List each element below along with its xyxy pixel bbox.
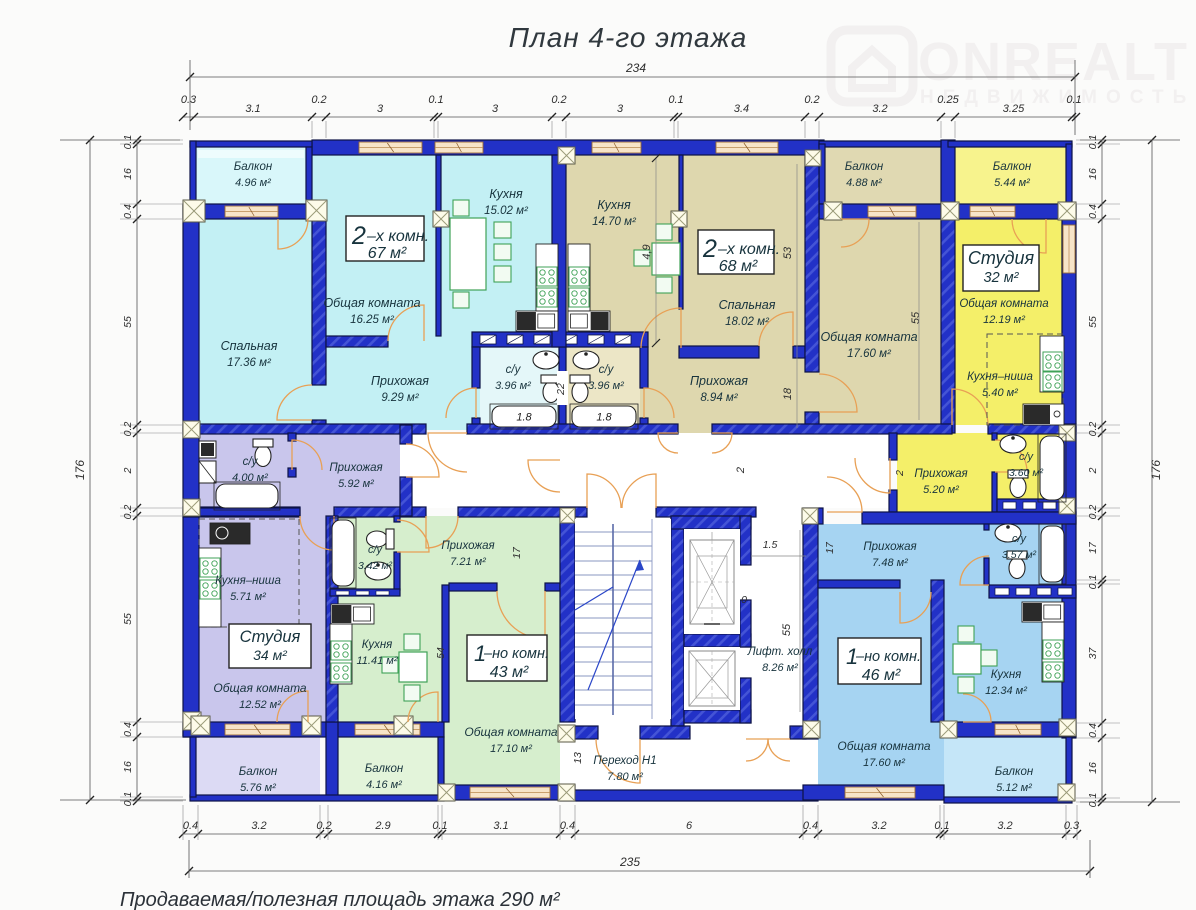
svg-text:13: 13	[572, 752, 584, 764]
svg-text:16: 16	[122, 761, 134, 773]
svg-text:с/у: с/у	[1019, 451, 1035, 463]
svg-text:3.96 м²: 3.96 м²	[495, 380, 531, 392]
svg-text:0.1: 0.1	[668, 94, 683, 106]
svg-text:0.1: 0.1	[934, 820, 949, 832]
svg-text:Общая комната: Общая комната	[837, 739, 931, 753]
svg-text:Прихожая: Прихожая	[690, 374, 748, 388]
svg-text:3.2: 3.2	[872, 103, 887, 115]
svg-text:16: 16	[1087, 762, 1099, 774]
svg-text:4,9: 4,9	[641, 244, 653, 259]
svg-text:Кухня: Кухня	[489, 187, 523, 201]
svg-text:12.34 м²: 12.34 м²	[985, 685, 1027, 697]
svg-text:17: 17	[511, 546, 523, 559]
svg-text:–но комн.: –но комн.	[483, 646, 549, 662]
svg-text:0.1: 0.1	[428, 94, 443, 106]
svg-text:Прихожая: Прихожая	[329, 462, 382, 474]
svg-text:0: 0	[741, 594, 747, 606]
svg-text:Прихожая: Прихожая	[441, 540, 494, 552]
svg-text:Балкон: Балкон	[239, 766, 278, 778]
svg-text:Балкон: Балкон	[234, 161, 273, 173]
svg-text:Кухня: Кухня	[991, 669, 1022, 681]
svg-text:Прихожая: Прихожая	[863, 541, 916, 553]
svg-text:0.1: 0.1	[1087, 793, 1099, 808]
svg-text:Продаваемая/полезная площадь э: Продаваемая/полезная площадь этажа 290 м…	[120, 889, 561, 910]
svg-text:Общая комната: Общая комната	[213, 681, 307, 695]
svg-text:0.2: 0.2	[122, 505, 134, 520]
svg-text:0.1: 0.1	[1066, 94, 1081, 106]
svg-text:55: 55	[122, 316, 134, 328]
svg-text:7.48 м²: 7.48 м²	[872, 557, 908, 569]
svg-text:–х комн.: –х комн.	[366, 228, 429, 245]
svg-text:3: 3	[492, 103, 499, 115]
svg-text:2: 2	[735, 467, 747, 474]
svg-text:17.36 м²: 17.36 м²	[227, 357, 272, 369]
svg-text:Спальная: Спальная	[719, 298, 776, 312]
svg-text:0.1: 0.1	[1087, 575, 1099, 590]
svg-text:7.80 м²: 7.80 м²	[607, 771, 643, 783]
svg-text:55: 55	[910, 311, 922, 324]
svg-text:Кухня: Кухня	[597, 198, 631, 212]
svg-text:1.8: 1.8	[516, 412, 532, 424]
svg-text:0.2: 0.2	[804, 94, 819, 106]
svg-text:Балкон: Балкон	[845, 161, 884, 173]
svg-text:9.29 м²: 9.29 м²	[381, 392, 419, 404]
svg-text:3.2: 3.2	[251, 820, 266, 832]
svg-text:3.1: 3.1	[245, 103, 260, 115]
svg-text:3.42 м²: 3.42 м²	[358, 560, 393, 572]
svg-text:Спальная: Спальная	[221, 339, 278, 353]
svg-text:176: 176	[1149, 460, 1163, 480]
svg-text:7.21 м²: 7.21 м²	[450, 556, 486, 568]
svg-text:0.1: 0.1	[432, 820, 447, 832]
svg-text:Общая комната: Общая комната	[820, 330, 917, 344]
svg-text:0.2: 0.2	[1087, 505, 1099, 520]
svg-text:Общая комната: Общая комната	[323, 296, 420, 310]
svg-text:15.02 м²: 15.02 м²	[484, 205, 529, 217]
svg-text:3.2: 3.2	[871, 820, 886, 832]
svg-text:17.60 м²: 17.60 м²	[847, 348, 892, 360]
svg-text:2: 2	[1087, 467, 1099, 474]
svg-text:3.2: 3.2	[997, 820, 1012, 832]
svg-text:с/у: с/у	[1012, 533, 1028, 545]
svg-text:32 м²: 32 м²	[984, 270, 1020, 286]
svg-text:Студия: Студия	[968, 248, 1035, 268]
svg-text:5.92 м²: 5.92 м²	[338, 478, 374, 490]
svg-text:53: 53	[782, 246, 794, 259]
svg-text:16: 16	[122, 168, 134, 180]
svg-text:1.5: 1.5	[763, 539, 778, 551]
svg-text:34 м²: 34 м²	[253, 647, 288, 663]
svg-text:НЕДВИЖИМОСТЬ: НЕДВИЖИМОСТЬ	[920, 87, 1195, 108]
svg-text:3.96 м²: 3.96 м²	[588, 380, 624, 392]
svg-text:17: 17	[1087, 541, 1099, 554]
svg-text:5.40 м²: 5.40 м²	[982, 387, 1018, 399]
svg-text:0.4: 0.4	[1087, 204, 1099, 219]
svg-text:0.3: 0.3	[181, 94, 197, 106]
svg-text:0.2: 0.2	[551, 94, 566, 106]
svg-text:3.4: 3.4	[734, 103, 749, 115]
svg-text:Прихожая: Прихожая	[914, 468, 967, 480]
svg-text:176: 176	[73, 460, 87, 480]
svg-text:2.9: 2.9	[374, 820, 390, 832]
svg-text:Общая комната: Общая комната	[464, 725, 558, 739]
svg-text:0.2: 0.2	[122, 422, 134, 437]
svg-text:8.26 м²: 8.26 м²	[762, 662, 798, 674]
svg-text:5.20 м²: 5.20 м²	[923, 484, 959, 496]
svg-text:18.02 м²: 18.02 м²	[725, 316, 770, 328]
svg-text:с/у: с/у	[368, 544, 384, 556]
svg-text:16: 16	[1087, 168, 1099, 180]
svg-text:Переход Н1: Переход Н1	[593, 755, 656, 767]
svg-text:0.25: 0.25	[937, 94, 959, 106]
svg-text:0.2: 0.2	[1087, 422, 1099, 437]
svg-text:234: 234	[625, 61, 646, 75]
svg-text:0.4: 0.4	[122, 722, 134, 737]
svg-text:17.60 м²: 17.60 м²	[863, 757, 905, 769]
svg-text:Балкон: Балкон	[995, 766, 1034, 778]
svg-text:0.2: 0.2	[316, 820, 331, 832]
svg-text:46 м²: 46 м²	[862, 667, 901, 684]
svg-text:Лифт. холл: Лифт. холл	[747, 646, 813, 658]
svg-text:3.60 м²: 3.60 м²	[1009, 467, 1044, 479]
svg-text:0.1: 0.1	[122, 135, 134, 150]
svg-text:ONREALT: ONREALT	[918, 32, 1189, 92]
svg-text:2: 2	[702, 235, 717, 263]
svg-text:4.96 м²: 4.96 м²	[235, 177, 271, 189]
svg-text:с/у: с/у	[243, 456, 259, 468]
svg-text:16.25 м²: 16.25 м²	[350, 314, 395, 326]
svg-text:0.1: 0.1	[122, 792, 134, 807]
svg-text:12.19 м²: 12.19 м²	[983, 314, 1025, 326]
svg-text:2: 2	[122, 467, 134, 474]
svg-text:Кухня–ниша: Кухня–ниша	[967, 371, 1033, 383]
svg-text:Студия: Студия	[240, 628, 301, 646]
svg-text:68 м²: 68 м²	[719, 258, 758, 275]
svg-text:3: 3	[377, 103, 384, 115]
svg-text:22: 22	[555, 383, 567, 396]
svg-text:4.00 м²: 4.00 м²	[232, 472, 268, 484]
svg-text:3: 3	[617, 103, 624, 115]
svg-text:3.1: 3.1	[493, 820, 508, 832]
svg-text:0.4: 0.4	[803, 820, 818, 832]
svg-text:План 4-го этажа: План 4-го этажа	[509, 22, 748, 53]
svg-text:55: 55	[781, 623, 793, 636]
svg-text:Прихожая: Прихожая	[371, 374, 429, 388]
svg-text:5.12 м²: 5.12 м²	[996, 782, 1032, 794]
svg-text:6: 6	[686, 820, 693, 832]
svg-text:с/у: с/у	[506, 364, 522, 376]
svg-text:Общая комната: Общая комната	[959, 298, 1048, 310]
svg-text:0.4: 0.4	[122, 204, 134, 219]
svg-text:4.88 м²: 4.88 м²	[846, 177, 882, 189]
svg-text:17.10 м²: 17.10 м²	[490, 743, 532, 755]
svg-text:0.4: 0.4	[183, 820, 198, 832]
svg-text:54: 54	[435, 647, 447, 659]
svg-text:5.44 м²: 5.44 м²	[994, 177, 1030, 189]
svg-text:2: 2	[894, 470, 906, 477]
svg-text:43 м²: 43 м²	[490, 664, 529, 681]
svg-text:14.70 м²: 14.70 м²	[592, 216, 637, 228]
svg-text:17: 17	[824, 541, 836, 554]
svg-text:67 м²: 67 м²	[368, 245, 407, 262]
svg-text:Балкон: Балкон	[365, 763, 404, 775]
svg-text:5.76 м²: 5.76 м²	[240, 782, 276, 794]
svg-text:2: 2	[351, 222, 366, 250]
svg-text:–х комн.: –х комн.	[717, 241, 780, 258]
svg-text:3.57 м²: 3.57 м²	[1002, 549, 1037, 561]
svg-text:37: 37	[1087, 647, 1099, 660]
svg-text:18: 18	[782, 387, 794, 400]
svg-text:0.3: 0.3	[1064, 820, 1080, 832]
svg-text:4.16 м²: 4.16 м²	[366, 779, 402, 791]
svg-text:55: 55	[1087, 316, 1099, 328]
svg-text:12.52 м²: 12.52 м²	[239, 699, 281, 711]
svg-text:0.4: 0.4	[1087, 723, 1099, 738]
svg-text:с/у: с/у	[599, 364, 615, 376]
svg-text:Балкон: Балкон	[993, 161, 1032, 173]
svg-text:11.41 м²: 11.41 м²	[357, 655, 398, 667]
svg-text:–но комн.: –но комн.	[855, 649, 921, 665]
svg-text:0.2: 0.2	[311, 94, 326, 106]
svg-text:Кухня: Кухня	[362, 639, 393, 651]
svg-text:5.71 м²: 5.71 м²	[230, 591, 266, 603]
svg-text:55: 55	[122, 613, 134, 625]
svg-text:0.1: 0.1	[1087, 135, 1099, 150]
svg-text:3.25: 3.25	[1003, 103, 1025, 115]
svg-text:235: 235	[619, 855, 640, 869]
svg-text:0.4: 0.4	[560, 820, 575, 832]
svg-text:Кухня–ниша: Кухня–ниша	[215, 575, 281, 587]
svg-text:8.94 м²: 8.94 м²	[700, 392, 738, 404]
svg-text:1.8: 1.8	[596, 412, 612, 424]
